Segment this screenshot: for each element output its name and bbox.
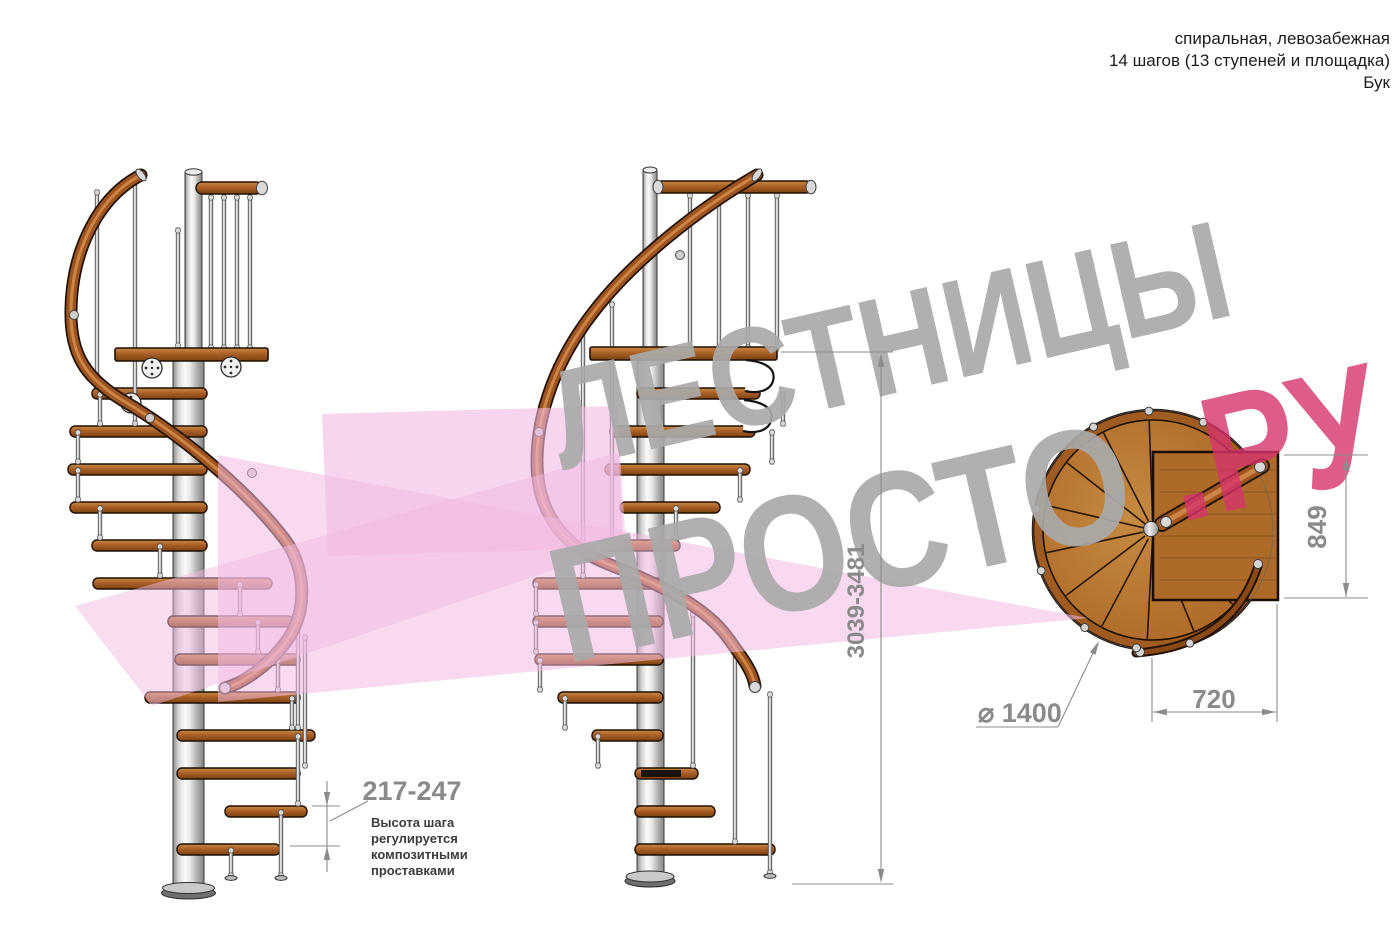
step-edge-shadow: [641, 770, 681, 777]
baluster-rod: [279, 810, 283, 878]
total-height-label: 3039-3481: [843, 544, 870, 659]
baluster-joint: [75, 468, 80, 473]
baluster-foot: [275, 876, 287, 881]
baluster-joint: [247, 195, 252, 200]
flange-bolt: [230, 366, 232, 368]
baluster-joint: [562, 696, 567, 701]
watermark-line2-pink: .РУ: [1146, 328, 1400, 557]
baluster-joint: [132, 421, 137, 426]
baluster-rod: [235, 195, 239, 350]
baluster-plan-peg: [1132, 644, 1140, 652]
baluster-rod: [733, 650, 737, 844]
baluster-rod: [133, 178, 137, 426]
staircase-drawing: ЛЕСТНИЦЫ ПРОСТО .РУ: [0, 0, 1400, 937]
arrowhead: [1153, 709, 1167, 715]
handrail-end-cap: [750, 682, 761, 693]
baluster-rod: [768, 692, 772, 875]
baluster-joint: [228, 848, 233, 853]
baluster-joint: [175, 228, 180, 233]
step: [592, 730, 663, 741]
baluster-joint: [234, 195, 239, 200]
handrail-cap: [806, 180, 816, 194]
baluster-joint: [609, 302, 614, 307]
baluster-rod: [209, 195, 213, 350]
baluster-joint: [690, 763, 695, 768]
step-note-line4: проставками: [371, 863, 455, 878]
baluster-joint: [295, 725, 300, 730]
baluster-foot: [764, 874, 776, 879]
baluster-joint: [289, 725, 294, 730]
baluster-rod: [296, 734, 300, 806]
step: [635, 844, 775, 855]
baluster-joint: [157, 573, 162, 578]
baluster-foot: [225, 876, 237, 881]
arrowhead: [324, 846, 330, 860]
flange-bolt: [224, 366, 227, 369]
baluster-joint: [562, 725, 567, 730]
baluster-joint: [75, 497, 80, 502]
step-note-line1: Высота шага: [371, 815, 455, 830]
pole-cap: [643, 167, 657, 173]
pole-cap: [185, 169, 202, 175]
baluster-joint: [221, 195, 226, 200]
base-flange-top: [626, 871, 674, 882]
flange-bolt: [151, 361, 154, 364]
baluster-joint: [595, 734, 600, 739]
baluster-joint: [595, 763, 600, 768]
title-steps: 14 шагов (13 ступеней и площадка): [1109, 50, 1390, 72]
baluster-rod: [176, 228, 180, 348]
arrowhead: [878, 869, 884, 883]
baluster-joint: [75, 430, 80, 435]
landing-depth-label: 849: [1302, 505, 1332, 548]
landing-width-label: 720: [1192, 684, 1235, 714]
step: [177, 768, 300, 779]
handrail-cap: [653, 180, 663, 194]
step: [92, 540, 207, 551]
title-block: спиральная, левозабежная 14 шагов (13 ст…: [1109, 28, 1390, 94]
baluster-joint: [97, 506, 102, 511]
flange-bolt: [230, 360, 233, 363]
baluster-joint: [289, 696, 294, 701]
landing-platform: [115, 348, 268, 361]
baluster-joint: [157, 544, 162, 549]
leader-line: [1058, 653, 1093, 727]
step-note-line2: регулируется: [371, 831, 458, 846]
baluster-joint: [75, 459, 80, 464]
flange-bolt: [230, 372, 233, 375]
baluster-joint: [97, 535, 102, 540]
flange-bolt: [236, 366, 239, 369]
step: [225, 806, 307, 817]
baluster-rod: [222, 195, 226, 350]
step: [177, 730, 315, 741]
handrail-joint: [146, 414, 155, 423]
baluster-plan-peg: [1186, 639, 1194, 647]
baluster-joint: [767, 692, 772, 697]
flange-bolt: [157, 367, 160, 370]
diameter-label: ⌀ 1400: [978, 698, 1062, 728]
flange-bolt: [151, 373, 154, 376]
arrowhead: [1262, 709, 1276, 715]
step: [68, 464, 207, 475]
step: [70, 426, 207, 437]
flange-bolt: [151, 367, 153, 369]
handrail-joint: [70, 311, 79, 320]
baluster-joint: [295, 734, 300, 739]
baluster-joint: [302, 763, 307, 768]
title-material: Бук: [1109, 72, 1390, 94]
step-note-line3: композитными: [371, 847, 468, 862]
step-height-label: 217-247: [362, 776, 461, 806]
baluster-joint: [94, 190, 99, 195]
baluster-joint: [295, 801, 300, 806]
baluster-joint: [278, 810, 283, 815]
step: [635, 806, 715, 817]
handrail-cap: [257, 181, 268, 195]
arrowhead: [1090, 641, 1099, 655]
baluster-rod: [248, 195, 252, 350]
arrowhead: [1343, 583, 1349, 597]
step: [70, 502, 207, 513]
baluster-joint: [732, 839, 737, 844]
top-handrail: [196, 182, 262, 194]
baluster-joint: [97, 421, 102, 426]
arrowhead: [324, 792, 330, 806]
title-type: спиральная, левозабежная: [1109, 28, 1390, 50]
flange-bolt: [145, 367, 148, 370]
drawing-canvas: ЛЕСТНИЦЫ ПРОСТО .РУ: [0, 0, 1400, 937]
baluster-joint: [208, 195, 213, 200]
baluster-joint: [537, 687, 542, 692]
baluster-plan-peg: [1081, 623, 1089, 631]
center-pole-upper: [185, 172, 202, 355]
base-flange-top: [163, 883, 215, 894]
handrail-joint: [676, 251, 685, 260]
